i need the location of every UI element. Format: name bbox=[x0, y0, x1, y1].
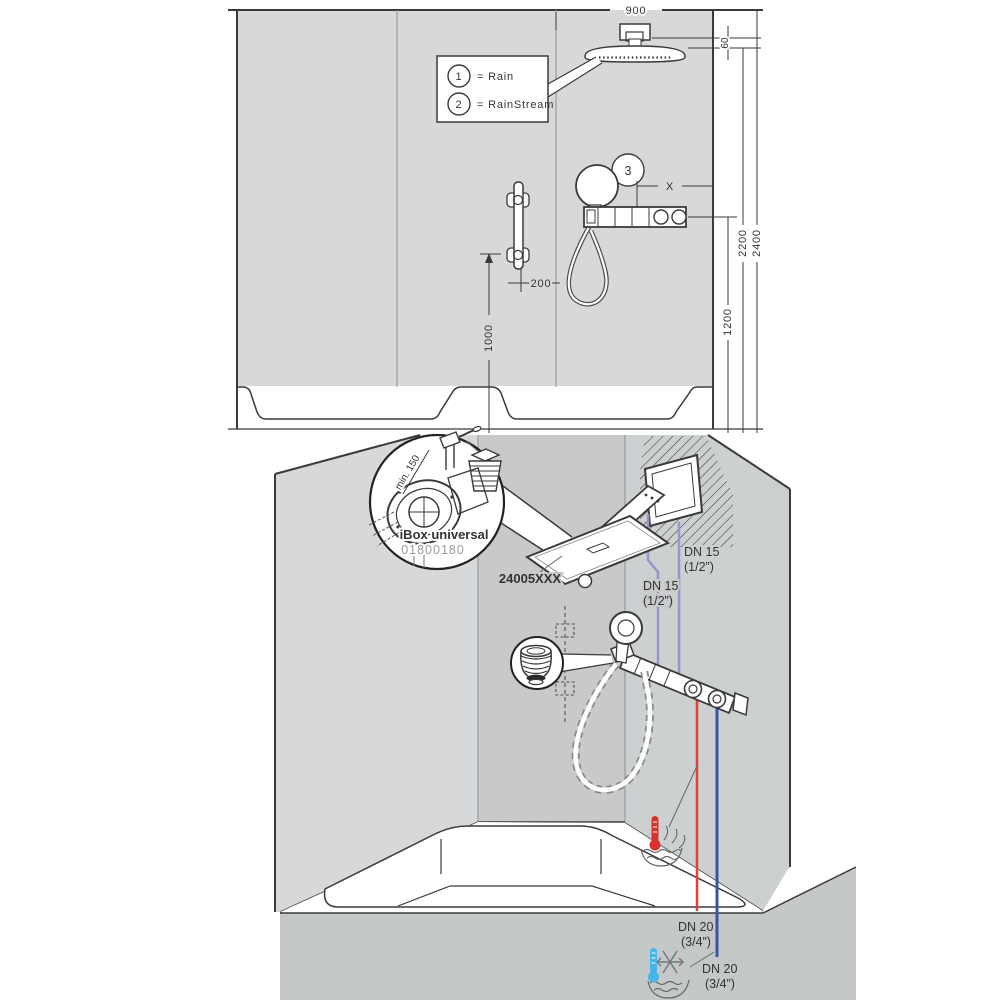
connector-top bbox=[521, 646, 551, 657]
dim-bar-offset: 200 bbox=[531, 278, 552, 290]
thermostat-module-front bbox=[584, 207, 686, 227]
knob-1-iso bbox=[685, 681, 702, 698]
legend-label-2: = RainStream bbox=[477, 99, 554, 111]
callout-3-num: 3 bbox=[625, 164, 632, 178]
dim-height-head: 2200 bbox=[737, 229, 749, 257]
product-code: 24005XXX bbox=[499, 571, 561, 586]
thermostat-knob-1 bbox=[654, 210, 668, 224]
cold-thermometer bbox=[650, 948, 657, 974]
arm-screw-3 bbox=[657, 500, 660, 503]
dim-x: X bbox=[666, 181, 674, 193]
legend-label-1: = Rain bbox=[477, 71, 514, 83]
diagram-canvas: 1 = Rain 2 = RainStream 3 bbox=[0, 0, 1000, 1000]
dim-height-full: 2400 bbox=[751, 229, 763, 257]
dn20-size-2: (3/4”) bbox=[705, 977, 735, 991]
arm-screw-1 bbox=[645, 494, 648, 497]
hot-thermometer-bulb bbox=[650, 840, 661, 851]
ibox-code: 01800180 bbox=[401, 543, 465, 557]
dn20-size-1: (3/4”) bbox=[681, 935, 711, 949]
thermostat-knob-2 bbox=[672, 210, 686, 224]
dn20-label-1: DN 20 bbox=[678, 920, 713, 934]
legend-num-2: 2 bbox=[456, 99, 463, 111]
isometric-view: min. 150 iBox universal 01800180 24005XX… bbox=[275, 426, 856, 1000]
ball-joint bbox=[579, 575, 592, 588]
dn20-label-2: DN 20 bbox=[702, 962, 737, 976]
arm-screw-2 bbox=[651, 497, 654, 500]
ibox-title: iBox universal bbox=[400, 527, 489, 542]
connector-tip bbox=[529, 679, 543, 684]
thermostat-body bbox=[584, 207, 686, 227]
hand-shower-head-iso bbox=[610, 612, 642, 644]
knob-2-iso bbox=[709, 691, 726, 708]
cold-thermometer-bulb bbox=[648, 972, 659, 983]
legend-num-1: 1 bbox=[456, 71, 463, 83]
shower-head bbox=[585, 46, 685, 62]
floor-band bbox=[237, 386, 713, 431]
dim-height-bar: 1000 bbox=[483, 324, 495, 352]
hand-shower-head bbox=[576, 165, 618, 207]
dn15-label-2: DN 15 bbox=[643, 579, 678, 593]
dn15-size-2: (1/2”) bbox=[643, 594, 673, 608]
installation-diagram: 1 = Rain 2 = RainStream 3 bbox=[0, 0, 1000, 1000]
dim-width: 900 bbox=[626, 5, 647, 17]
dim-head-drop: 60 bbox=[720, 37, 731, 49]
dn15-label-1: DN 15 bbox=[684, 545, 719, 559]
dim-height-thermostat: 1200 bbox=[722, 308, 734, 336]
front-elevation: 1 = Rain 2 = RainStream 3 bbox=[228, 5, 763, 433]
dn15-size-1: (1/2”) bbox=[684, 560, 714, 574]
